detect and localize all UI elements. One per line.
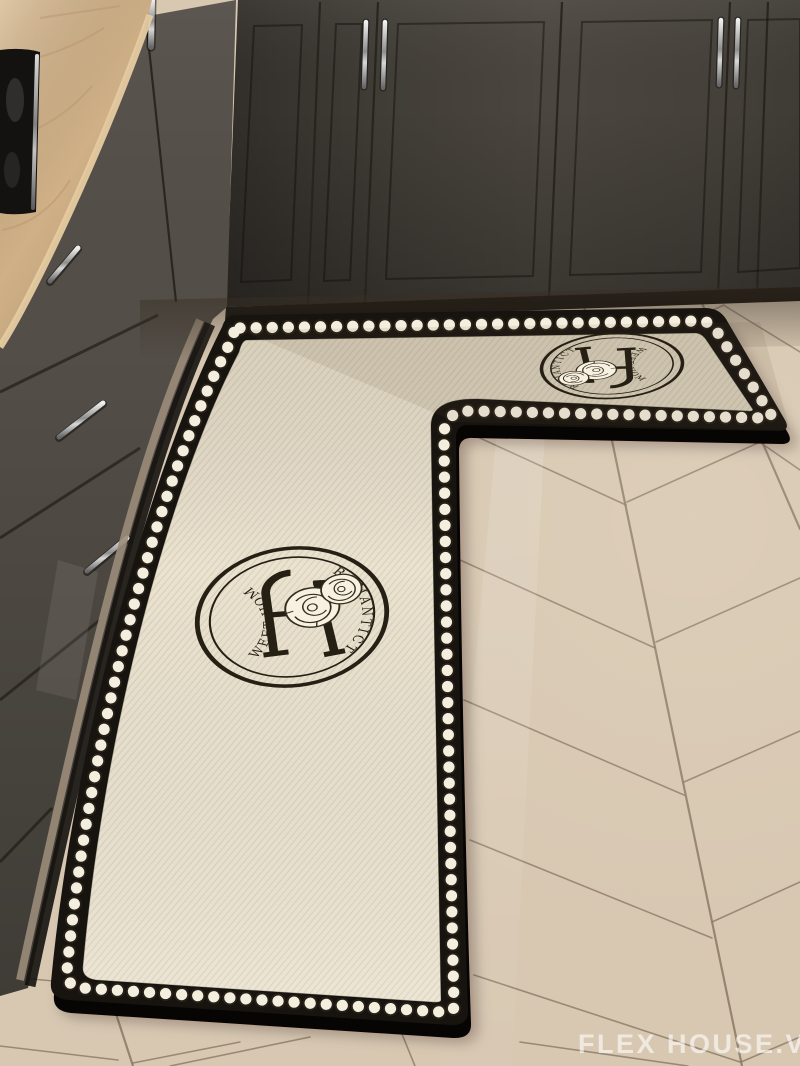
upper-cabinets [225,0,800,321]
burner-highlight [4,152,20,188]
cabinet-handle [383,22,385,88]
stove [0,49,40,214]
cabinet-shading [226,0,800,307]
product-photo: SWEET HOME ROMANTICT [0,0,800,1066]
watermark: FLEX HOUSE.VN [578,1029,800,1059]
burner-highlight [6,78,24,122]
cabinet-handle [364,22,366,87]
tall-cabinet-handle [151,0,152,47]
kitchen-scene: SWEET HOME ROMANTICT [0,0,800,1066]
cabinet-handle [719,20,721,85]
cabinet-handle [736,20,738,86]
